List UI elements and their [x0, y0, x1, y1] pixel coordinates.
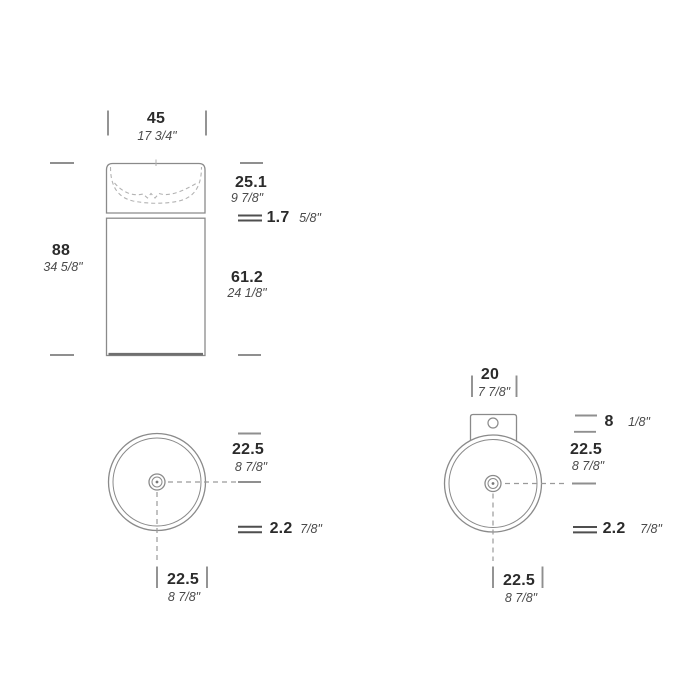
right-wall-in-label: 7/8" [640, 523, 662, 536]
rim-thickness-mark [238, 216, 262, 221]
right-center-side-cm-label: 22.5 [503, 573, 535, 589]
wall-thickness-mark [573, 527, 597, 532]
right-bracket-width-in-label: 7 7/8" [478, 386, 510, 399]
left-wall-cm-label: 2.2 [270, 521, 293, 537]
front-width-in-label: 17 3/4" [137, 130, 176, 143]
front-pedestal-in-label: 24 1/8" [227, 287, 266, 300]
front-basin-depth-cm-label: 25.1 [235, 175, 267, 191]
drawing-linework [0, 0, 700, 700]
front-basin-depth-in-label: 9 7/8" [231, 192, 263, 205]
front-rim-cm-label: 1.7 [267, 210, 290, 226]
pedestal-outline [107, 218, 206, 355]
right-center-back-in-label: 8 7/8" [572, 460, 604, 473]
left-wall-in-label: 7/8" [300, 523, 322, 536]
front-height-in-label: 34 5/8" [43, 261, 82, 274]
washbasin-technical-drawing: 45 17 3/4" 88 34 5/8" 25.1 9 7/8" 1.7 5/… [0, 0, 700, 700]
front-elevation-view [107, 160, 206, 356]
front-width-cm-label: 45 [147, 111, 165, 127]
top-view-left [109, 434, 237, 562]
left-center-side-cm-label: 22.5 [167, 572, 199, 588]
front-height-cm-label: 88 [52, 243, 70, 259]
bracket-hole [488, 418, 498, 428]
drain-center-dot [156, 481, 159, 484]
left-center-back-in-label: 8 7/8" [235, 461, 267, 474]
front-rim-in-label: 5/8" [299, 212, 321, 225]
wall-thickness-mark [238, 527, 262, 532]
right-bracket-width-cm-label: 20 [481, 367, 499, 383]
right-wall-cm-label: 2.2 [603, 521, 626, 537]
top-view-right [445, 415, 569, 562]
left-center-back-cm-label: 22.5 [232, 442, 264, 458]
right-bracket-depth-in-label: 1/8" [628, 416, 650, 429]
basin-outline [107, 164, 206, 214]
right-bracket-depth-cm-label: 8 [604, 414, 613, 430]
right-center-side-in-label: 8 7/8" [505, 592, 537, 605]
right-center-back-cm-label: 22.5 [570, 442, 602, 458]
left-center-side-in-label: 8 7/8" [168, 591, 200, 604]
drain-center-dot [492, 482, 495, 485]
front-pedestal-cm-label: 61.2 [231, 270, 263, 286]
